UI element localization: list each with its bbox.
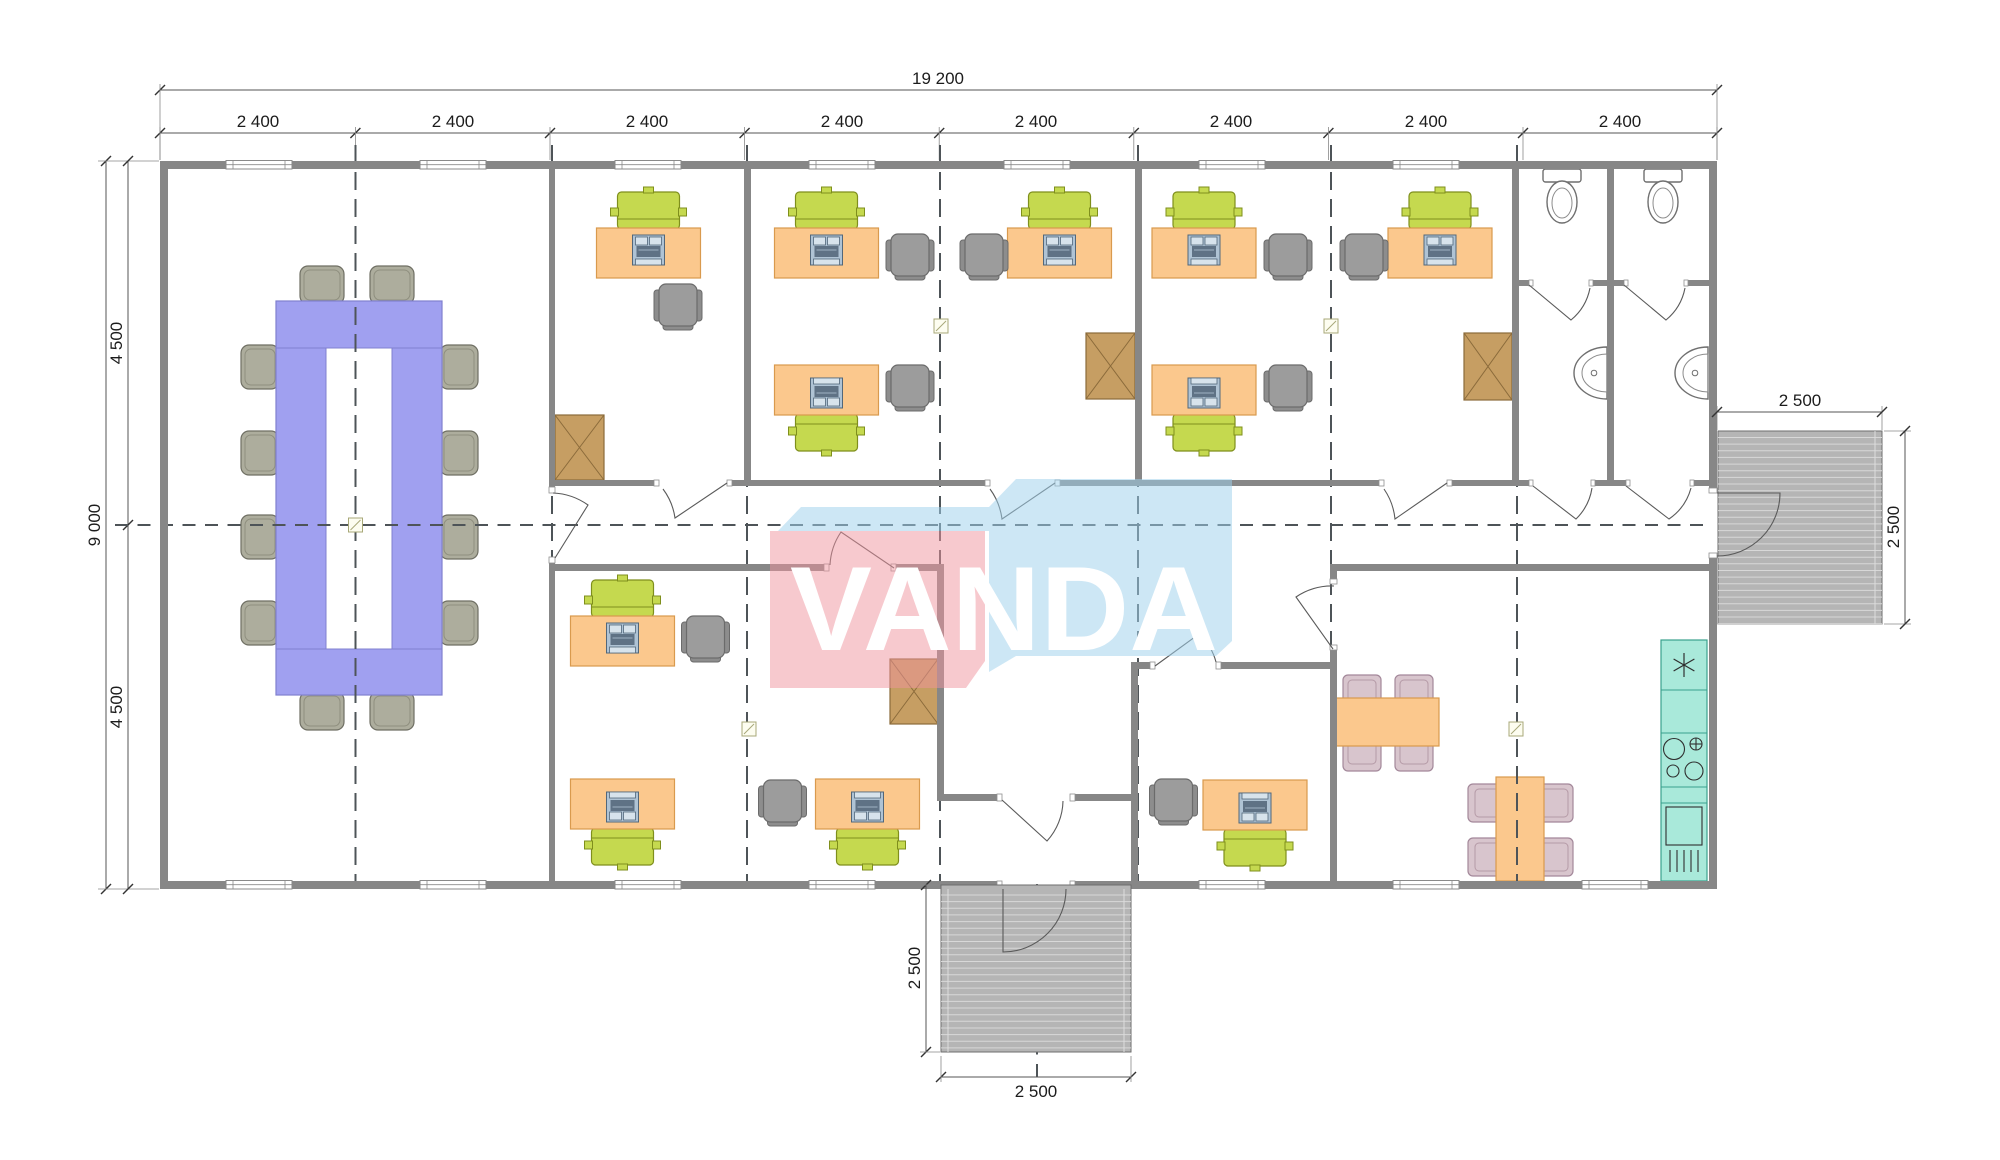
svg-text:2 400: 2 400 — [432, 112, 475, 131]
svg-text:2 500: 2 500 — [1884, 506, 1903, 549]
svg-text:2 400: 2 400 — [1210, 112, 1253, 131]
svg-text:2 400: 2 400 — [1599, 112, 1642, 131]
svg-text:2 400: 2 400 — [237, 112, 280, 131]
svg-text:VANDA: VANDA — [790, 542, 1218, 676]
svg-text:2 400: 2 400 — [1015, 112, 1058, 131]
svg-text:19 200: 19 200 — [912, 69, 964, 88]
svg-text:2 400: 2 400 — [821, 112, 864, 131]
svg-text:2 400: 2 400 — [626, 112, 669, 131]
svg-text:2 500: 2 500 — [905, 947, 924, 990]
svg-text:2 400: 2 400 — [1405, 112, 1448, 131]
svg-text:4 500: 4 500 — [107, 322, 126, 365]
svg-text:4 500: 4 500 — [107, 686, 126, 729]
svg-text:9 000: 9 000 — [85, 504, 104, 547]
svg-text:2 500: 2 500 — [1779, 391, 1822, 410]
svg-text:2 500: 2 500 — [1015, 1082, 1058, 1101]
